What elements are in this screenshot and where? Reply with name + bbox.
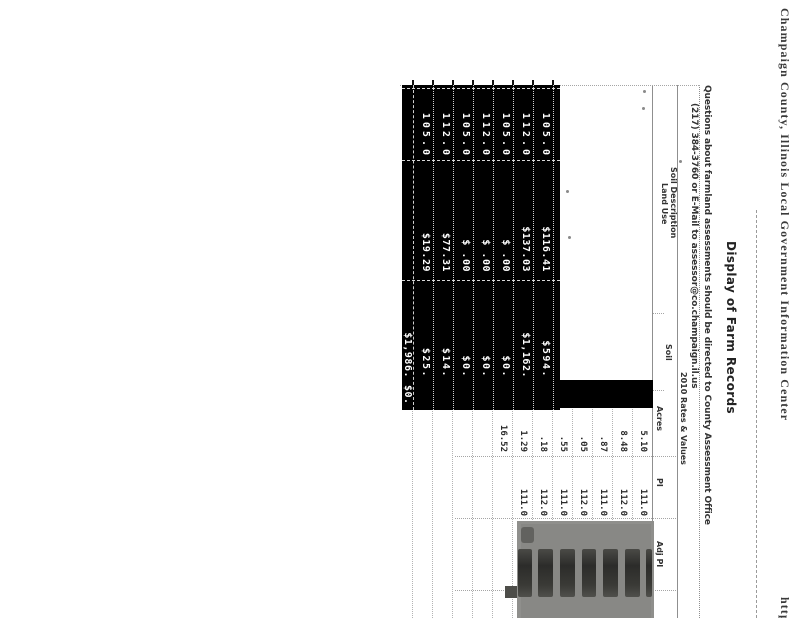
block-row-line [493,85,494,410]
soil-map-photo [517,521,654,618]
photo-smudge [521,527,534,543]
col-line-soil-acres [653,390,664,391]
block-total-amount: $1,986. [402,322,413,378]
photo-bar [603,549,618,597]
row-line [472,392,473,618]
scan-inversion-strip [548,380,653,408]
pi-value: 111.0 [558,462,568,516]
scan-speck [568,236,571,239]
block-row-line [533,85,534,410]
block-total-amount-2: $0. [402,385,413,407]
block-amount-value: $0. [480,322,491,378]
block-amount-value: $0. [460,322,471,378]
col-header-pi: PI [655,478,664,487]
block-row-line [553,85,554,410]
block-grid-line [402,160,560,161]
block-rate-value: $116.41 [540,220,551,272]
block-adjpi-value: 112.0 [440,108,451,158]
row-line [412,392,413,618]
block-row-line [473,85,474,410]
scan-speck [643,90,646,93]
table-top-border [699,85,700,618]
scan-speck [642,107,645,110]
col-header-soil-description: Soil Description [669,167,678,238]
page-title: Display of Farm Records [724,241,738,414]
block-amount-value: $25. [420,322,431,378]
pi-value: 112.0 [618,462,628,516]
row-line [512,392,513,618]
block-row-line [453,85,454,410]
block-rate-value: $ .00 [480,220,491,272]
note-line2: (217) 384-3760 or E-Mail to assessor@co.… [689,103,699,389]
block-row-line [433,85,434,410]
photo-bar [625,549,640,597]
block-amount-value: $594. [540,322,551,378]
block-amount-value: $14. [440,322,451,378]
photo-bar [560,549,575,597]
site-header: Champaign County, Illinois Local Governm… [777,8,792,421]
block-adjpi-value: 105.0 [540,108,551,158]
row-tick [412,80,414,85]
col-line-pi-adjpi [455,518,676,519]
scanned-fax-viewport: Champaign County, Illinois Local Governm… [0,0,800,618]
group-header-2010-rates: 2010 Rates & Values [679,372,688,465]
col-header-land-use: Land Use [660,183,669,224]
photo-bar [646,549,652,597]
block-adjpi-value: 105.0 [500,108,511,158]
scan-speck [566,190,569,193]
block-rate-value: $77.31 [440,220,451,272]
row-tick [452,80,454,85]
row-line [492,392,493,618]
table-header-rule-1 [677,85,678,618]
pi-value: 111.0 [638,462,648,516]
pi-value: 112.0 [578,462,588,516]
photo-bar [518,549,532,597]
row-tick [552,80,554,85]
col-header-acres: Acres [655,406,664,431]
block-adjpi-value: 105.0 [420,108,431,158]
header-rule [756,210,757,618]
block-rate-value: $ .00 [500,220,511,272]
block-adjpi-value: 112.0 [480,108,491,158]
site-url: http://www [777,597,792,618]
farm-records-page: Champaign County, Illinois Local Governm… [0,0,800,618]
col-line-acres-pi [455,456,676,457]
block-rate-value: $ .00 [460,220,471,272]
scan-speck [679,160,682,163]
scan-artifact-square [505,586,517,598]
block-row-line [513,85,514,410]
row-line [452,392,453,618]
photo-bar [538,549,553,597]
block-grid-line [402,88,560,89]
row-tick [472,80,474,85]
row-tick [532,80,534,85]
block-adjpi-value: 105.0 [460,108,471,158]
row-tick [432,80,434,85]
block-amount-value: $1,162. [520,322,531,378]
row-tick [512,80,514,85]
col-header-soil: Soil [664,344,673,361]
col-header-adj-pi: Adj PI [655,541,664,567]
block-row-line [413,85,414,410]
pi-value: 111.0 [598,462,608,516]
pi-value: 111.0 [518,462,528,516]
note-line1: Questions about farmland assessments sho… [702,85,712,525]
block-rate-value: $19.29 [420,220,431,272]
row-tick [492,80,494,85]
col-line-landuse-soil [653,313,664,314]
block-amount-value: $0. [500,322,511,378]
block-rate-value: $137.03 [520,220,531,272]
photo-bar [582,549,596,597]
block-adjpi-value: 112.0 [520,108,531,158]
row-line [432,392,433,618]
block-grid-line [402,280,560,281]
pi-value: 112.0 [538,462,548,516]
